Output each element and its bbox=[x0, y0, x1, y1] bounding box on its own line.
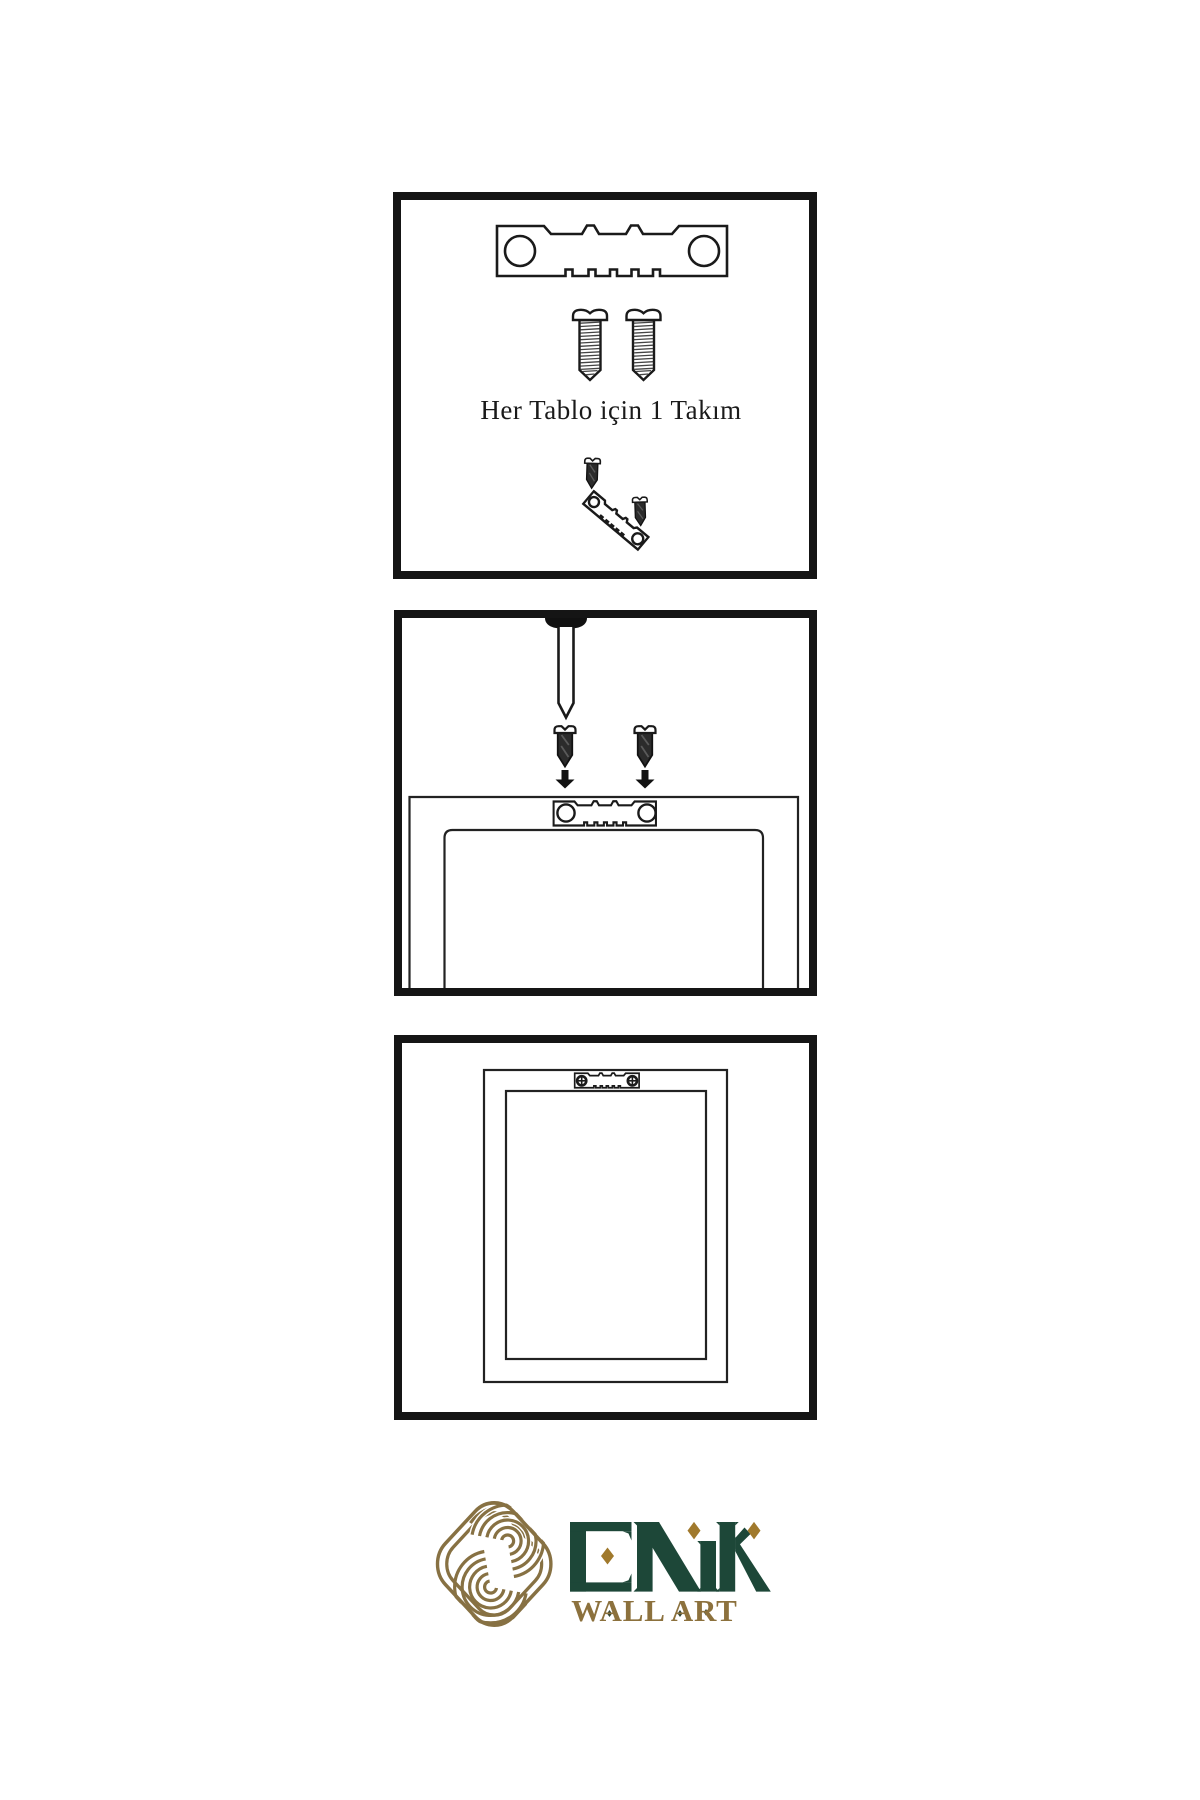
svg-text:Her Tablo için 1 Takım: Her Tablo için 1 Takım bbox=[480, 395, 741, 425]
svg-text:WALL ART: WALL ART bbox=[571, 1593, 737, 1628]
